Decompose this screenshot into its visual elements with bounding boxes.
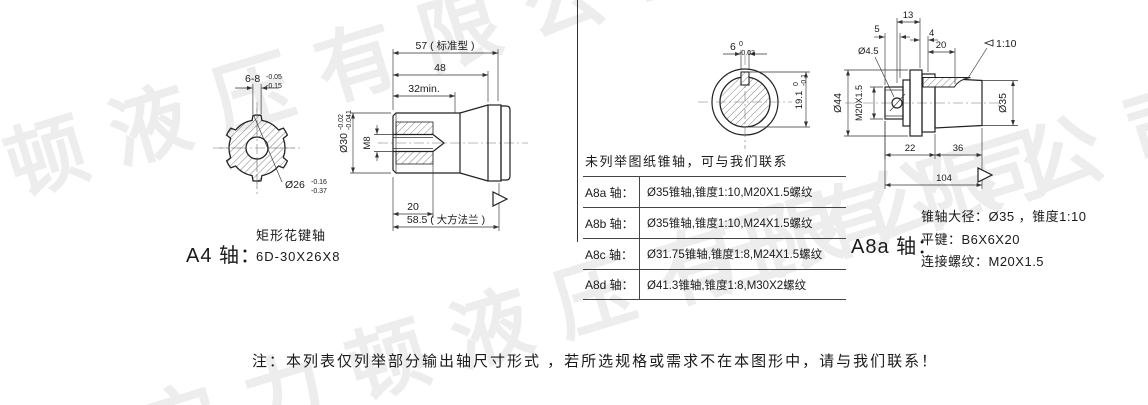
table-row: A8b 轴： Ø35锥轴,锥度1:10,M24X1.5螺纹: [583, 207, 846, 238]
table-row: A8d 轴： Ø41.3锥轴,锥度1:8,M30X2螺纹: [583, 269, 846, 300]
footer-note: 注：本列表仅列举部分输出轴尺寸形式 ，若所选规格或需求不在本图形中，请与我们联系…: [252, 350, 938, 371]
view-arrow-triangle: [493, 192, 507, 206]
dim-minor-dia-tol-low: -0.37: [311, 188, 327, 195]
dim-36: 36: [953, 143, 964, 154]
hatch-lower: [396, 152, 433, 165]
dim-key-height-tol-up: 0: [793, 82, 800, 86]
key: [741, 72, 749, 85]
hatch-upper: [396, 122, 433, 135]
row-label: A8c 轴：: [583, 239, 640, 269]
dim-hole: Ø4.5: [858, 46, 879, 57]
row-desc: Ø41.3锥轴,锥度1:8,M30X2螺纹: [640, 277, 846, 293]
dim-dia30-tol-up: -0.02: [338, 114, 345, 130]
dim-104: 104: [936, 173, 952, 184]
row-desc: Ø35锥轴,锥度1:10,M20X1.5螺纹: [640, 184, 846, 200]
taper-symbol: [985, 40, 993, 46]
a8a-side-view-drawing: Ø4.5 5 13 4 20 1:10 Ø44 M20X1.5: [830, 0, 1040, 200]
dim-5: 5: [874, 24, 879, 35]
dim-key-width-tol-up: 0: [739, 41, 743, 48]
shaft-spec-table: A8a 轴： Ø35锥轴,锥度1:10,M20X1.5螺纹 A8b 轴： Ø35…: [583, 176, 846, 300]
dim-spline-width-tol-low: -0.15: [266, 83, 282, 90]
dim-thread-m8: M8: [362, 136, 373, 149]
dim-spline-width-tol-up: -0.05: [266, 74, 282, 81]
key-section-view-drawing: 6 0 -0.03 19.1 0 -0.1: [660, 30, 840, 160]
dim-key-height-tol-low: -0.1: [801, 74, 808, 86]
keyway-slot: [923, 78, 971, 88]
dim-4: 4: [929, 28, 934, 39]
dim-total-length: 57 ( 标准型 ): [416, 39, 475, 52]
a4-side-view-drawing: 57 ( 标准型 ) 48 32min. M8 Ø30 -0.02 -0.041…: [330, 30, 580, 250]
a8a-spec-thread: 连接螺纹：M20X1.5: [921, 251, 1087, 274]
dim-dia35: Ø35: [997, 93, 1009, 113]
dim-key-width: 6: [730, 41, 736, 53]
dim-dia30-tol-low: -0.041: [346, 110, 353, 130]
a8a-spec-taper: 锥轴大径：Ø35 ，锥度1:10: [921, 206, 1087, 229]
dim-22: 22: [905, 143, 916, 154]
dim-585: 58.5 ( 大方法兰 ): [407, 213, 485, 226]
a4-shaft-title: A4 轴：: [186, 239, 261, 268]
dim-13: 13: [903, 10, 914, 21]
a8a-spec-key: 平键：B6X6X20: [921, 229, 1087, 252]
view-arrow-triangle: [978, 168, 992, 182]
dim-thread-m20: M20X1.5: [854, 85, 864, 121]
unlisted-shaft-note: 未列举图纸锥轴，可与我们联系: [585, 151, 788, 170]
row-label: A8a 轴：: [583, 177, 640, 207]
a4-shaft-spec: 6D-30X26X8: [256, 246, 340, 267]
dim-taper: 1:10: [996, 38, 1017, 50]
dim-key-width-tol-low: -0.03: [739, 50, 755, 57]
a4-shaft-description: 矩形花键轴 6D-30X26X8: [256, 225, 340, 267]
row-desc: Ø31.75锥轴,锥度1:8,M24X1.5螺纹: [640, 246, 846, 262]
dim-minor-dia: Ø26: [285, 179, 305, 191]
dim-48: 48: [434, 62, 446, 74]
dim-key-height: 19.1: [794, 91, 805, 110]
dim-minor-dia-tol-up: -0.16: [311, 179, 327, 186]
row-desc: Ø35锥轴,锥度1:10,M24X1.5螺纹: [640, 215, 846, 231]
dim-32min: 32min.: [408, 83, 440, 95]
table-row: A8c 轴： Ø31.75锥轴,锥度1:8,M24X1.5螺纹: [583, 238, 846, 269]
a4-shaft-type: 矩形花键轴: [256, 225, 340, 246]
dim-dia44: Ø44: [832, 93, 844, 113]
a8a-shaft-specs: 锥轴大径：Ø35 ，锥度1:10 平键：B6X6X20 连接螺纹：M20X1.5: [921, 206, 1087, 274]
table-row: A8a 轴： Ø35锥轴,锥度1:10,M20X1.5螺纹: [583, 176, 846, 207]
dim-20: 20: [936, 40, 947, 51]
dim-dia30: Ø30: [338, 133, 350, 153]
drawing-sheet: 顿液压有限公司 宁力顿液压有限公司 压有限公司 6-8 -0.05 -0.15 …: [0, 0, 1148, 405]
row-label: A8b 轴：: [583, 208, 640, 238]
row-label: A8d 轴：: [583, 270, 640, 299]
dim-20: 20: [407, 201, 419, 213]
dim-spline-width: 6-8: [245, 73, 260, 85]
